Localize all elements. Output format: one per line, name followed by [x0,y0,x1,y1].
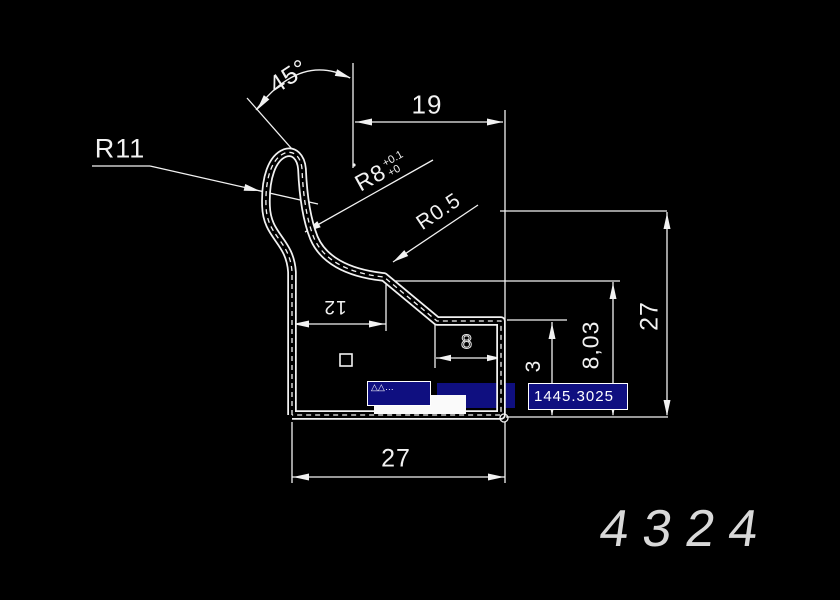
dim-label-3: 3 [522,360,546,373]
command-glyphs: △△… [371,382,394,392]
part-number: 4324 [596,499,776,559]
radius-label-r11: R11 [95,134,146,165]
coordinate-readout-box[interactable]: 1445.3025 [528,383,628,410]
command-glyph-box[interactable]: △△… [367,381,431,406]
dim-label-8-03: 8,03 [578,321,605,370]
profile-outline [266,152,501,415]
dim-label-27-bottom: 27 [381,445,411,474]
dim-label-notch-8: 8 [461,332,473,355]
coordinate-readout: 1445.3025 [534,388,614,405]
vertex-dot [352,163,355,166]
cad-canvas[interactable]: △△… 1445.3025 R11 45° 19 R8 +0.1 +0 R0.5… [0,0,840,600]
grip-square[interactable] [340,354,352,366]
dim-label-12: 12 [323,295,346,317]
dim-label-27-right: 27 [636,301,665,331]
dim-label-19: 19 [412,90,443,121]
